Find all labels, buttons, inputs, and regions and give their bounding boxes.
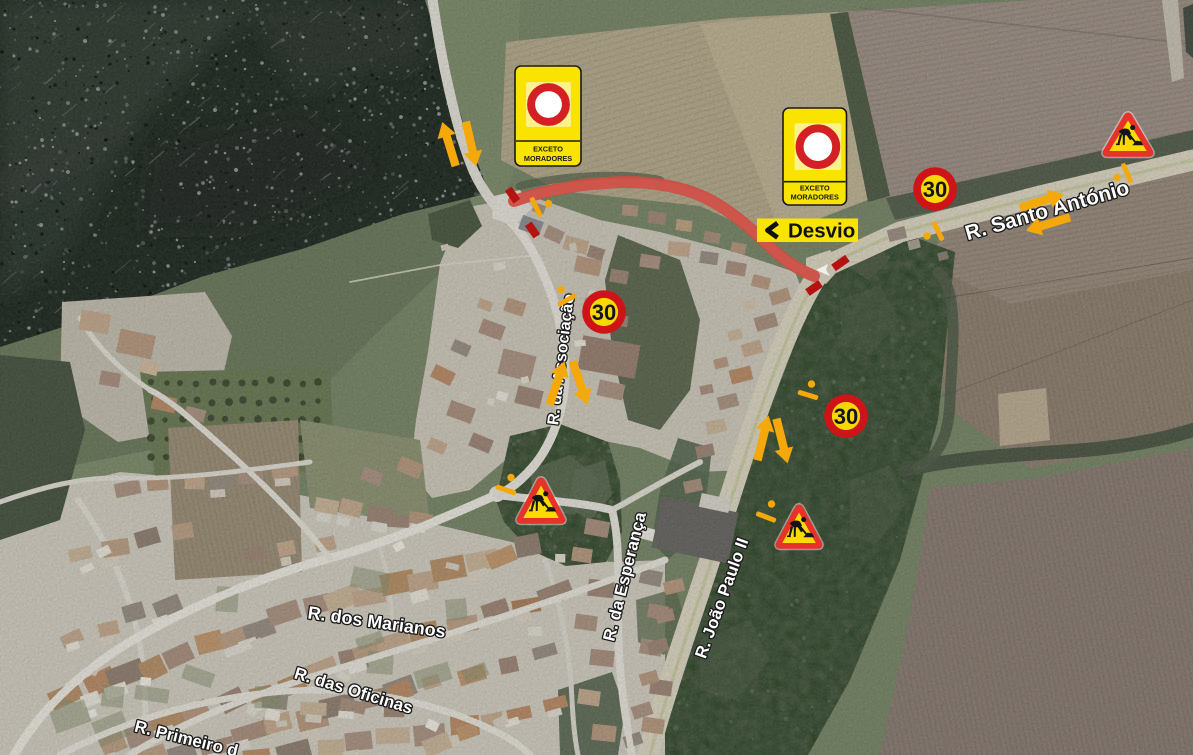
svg-text:MORADORES: MORADORES	[524, 154, 572, 163]
svg-text:30: 30	[834, 404, 858, 429]
svg-text:EXCETO: EXCETO	[800, 184, 830, 193]
svg-text:MORADORES: MORADORES	[791, 193, 839, 202]
svg-text:EXCETO: EXCETO	[533, 145, 563, 154]
svg-text:30: 30	[923, 177, 947, 202]
svg-text:Desvio: Desvio	[788, 220, 855, 243]
svg-text:30: 30	[592, 300, 616, 325]
